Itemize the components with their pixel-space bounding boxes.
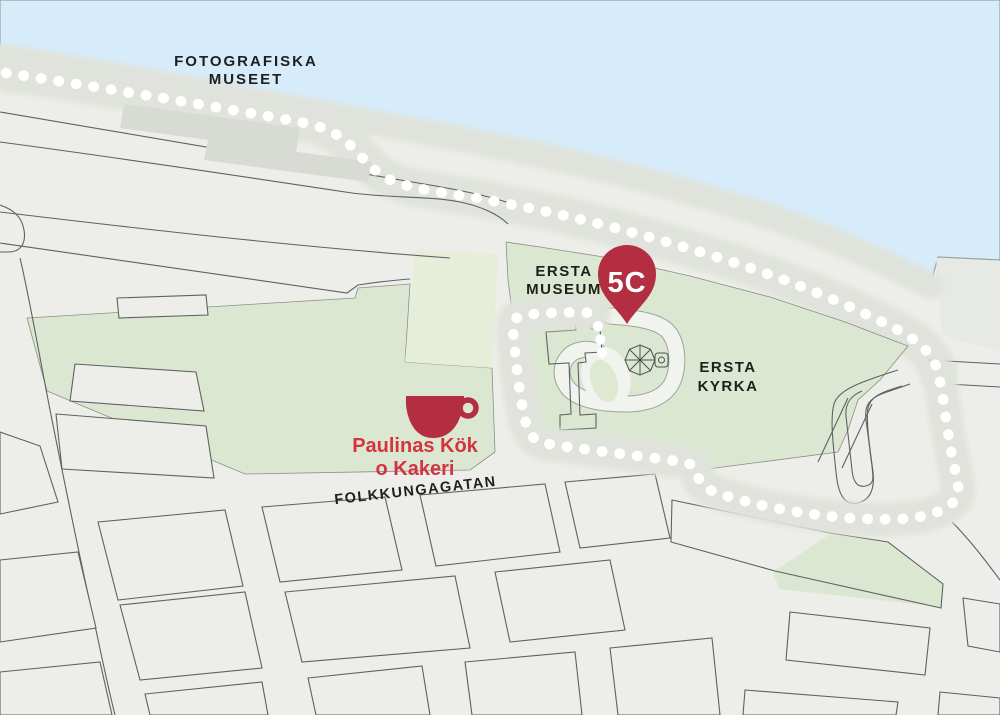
city-block	[285, 576, 470, 662]
city-block	[610, 638, 720, 715]
city-block	[565, 474, 670, 548]
pin-label: 5C	[607, 267, 646, 299]
city-block	[420, 484, 560, 566]
city-block	[98, 510, 243, 600]
city-block	[465, 652, 582, 715]
ersta-kyrka-label-line1: ERSTA	[699, 359, 756, 376]
fotografiska-label-line2: MUSEET	[209, 71, 284, 88]
map-canvas: 5C FOTOGRAFISKA MUSEET ERSTA MUSEUM ERST…	[0, 0, 1000, 715]
fotografiska-label-line1: FOTOGRAFISKA	[174, 53, 318, 70]
ersta-kyrka-label-line2: KYRKA	[698, 378, 759, 395]
ersta-museum-label-line1: ERSTA	[535, 263, 592, 280]
ersta-museum-label-line2: MUSEUM	[526, 281, 602, 298]
poi-label-line1: Paulinas Kök	[352, 435, 478, 457]
park-light-strip	[405, 250, 498, 368]
park-lot	[117, 295, 208, 318]
city-block	[120, 592, 262, 680]
city-block	[495, 560, 625, 642]
city-block	[262, 497, 402, 582]
city-block	[0, 662, 112, 715]
city-block	[0, 552, 96, 642]
poi-label-line2: o Kakeri	[376, 458, 455, 480]
